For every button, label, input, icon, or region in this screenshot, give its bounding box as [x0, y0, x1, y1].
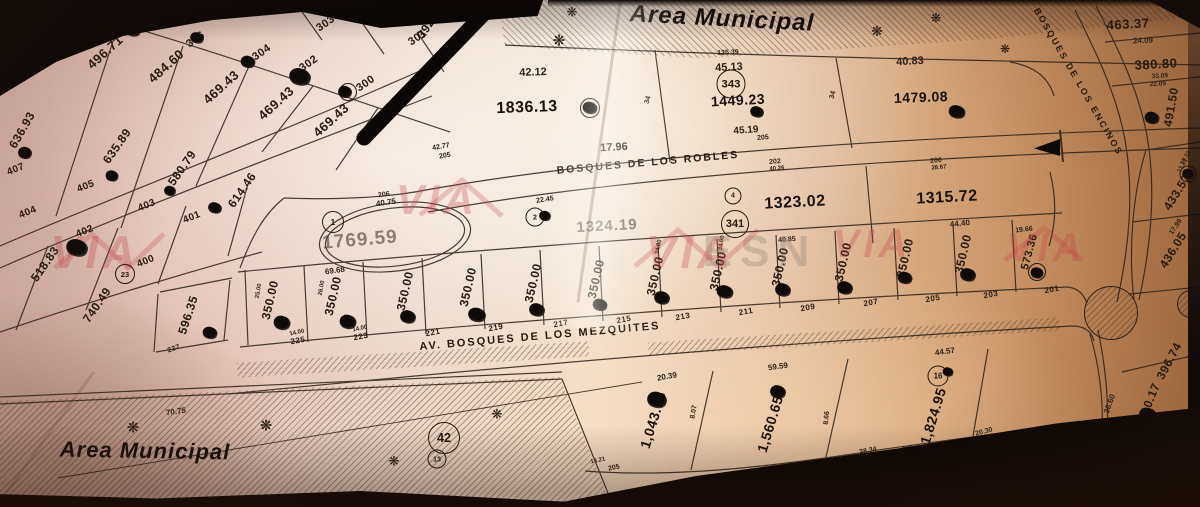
photo-dark-edge-top	[548, 0, 1200, 7]
ink-blot	[466, 306, 487, 325]
ink-blot	[1143, 110, 1161, 126]
tree-symbol-icon: ❋	[260, 419, 273, 434]
ink-blot	[16, 145, 33, 161]
ink-blot	[941, 366, 954, 378]
ink-blot	[287, 66, 313, 89]
ink-blot	[398, 308, 417, 325]
ink-blot	[835, 279, 854, 296]
ink-blot	[104, 169, 120, 183]
ink-blot	[958, 266, 977, 283]
tree-symbol-icon: ❋	[1000, 43, 1010, 55]
ink-blot	[715, 283, 735, 301]
ink-blot	[239, 54, 257, 70]
ink-blot	[1029, 266, 1045, 280]
ink-blot	[947, 103, 967, 121]
ink-blot	[896, 270, 914, 286]
ink-blot	[749, 105, 766, 120]
ink-blot	[207, 201, 224, 216]
ink-blot	[272, 314, 292, 333]
ink-blot	[768, 383, 787, 400]
ink-blot	[645, 389, 669, 410]
map-photo: Area Municipal Area Municipal BOSQUES DE…	[0, 0, 1200, 507]
ink-blot	[163, 184, 178, 197]
tree-symbol-icon: ❋	[871, 24, 883, 38]
tree-symbol-icon: ❋	[492, 408, 503, 421]
ink-blot	[64, 237, 90, 260]
ink-blot	[189, 31, 206, 46]
tree-symbol-icon: ❋	[127, 421, 140, 436]
ink-blot	[773, 281, 792, 298]
ink-blot	[338, 313, 358, 332]
tree-symbol-icon: ❋	[931, 12, 942, 25]
ink-blot	[336, 84, 353, 100]
tree-symbol-icon: ❋	[389, 455, 400, 468]
ink-blot	[201, 325, 219, 341]
